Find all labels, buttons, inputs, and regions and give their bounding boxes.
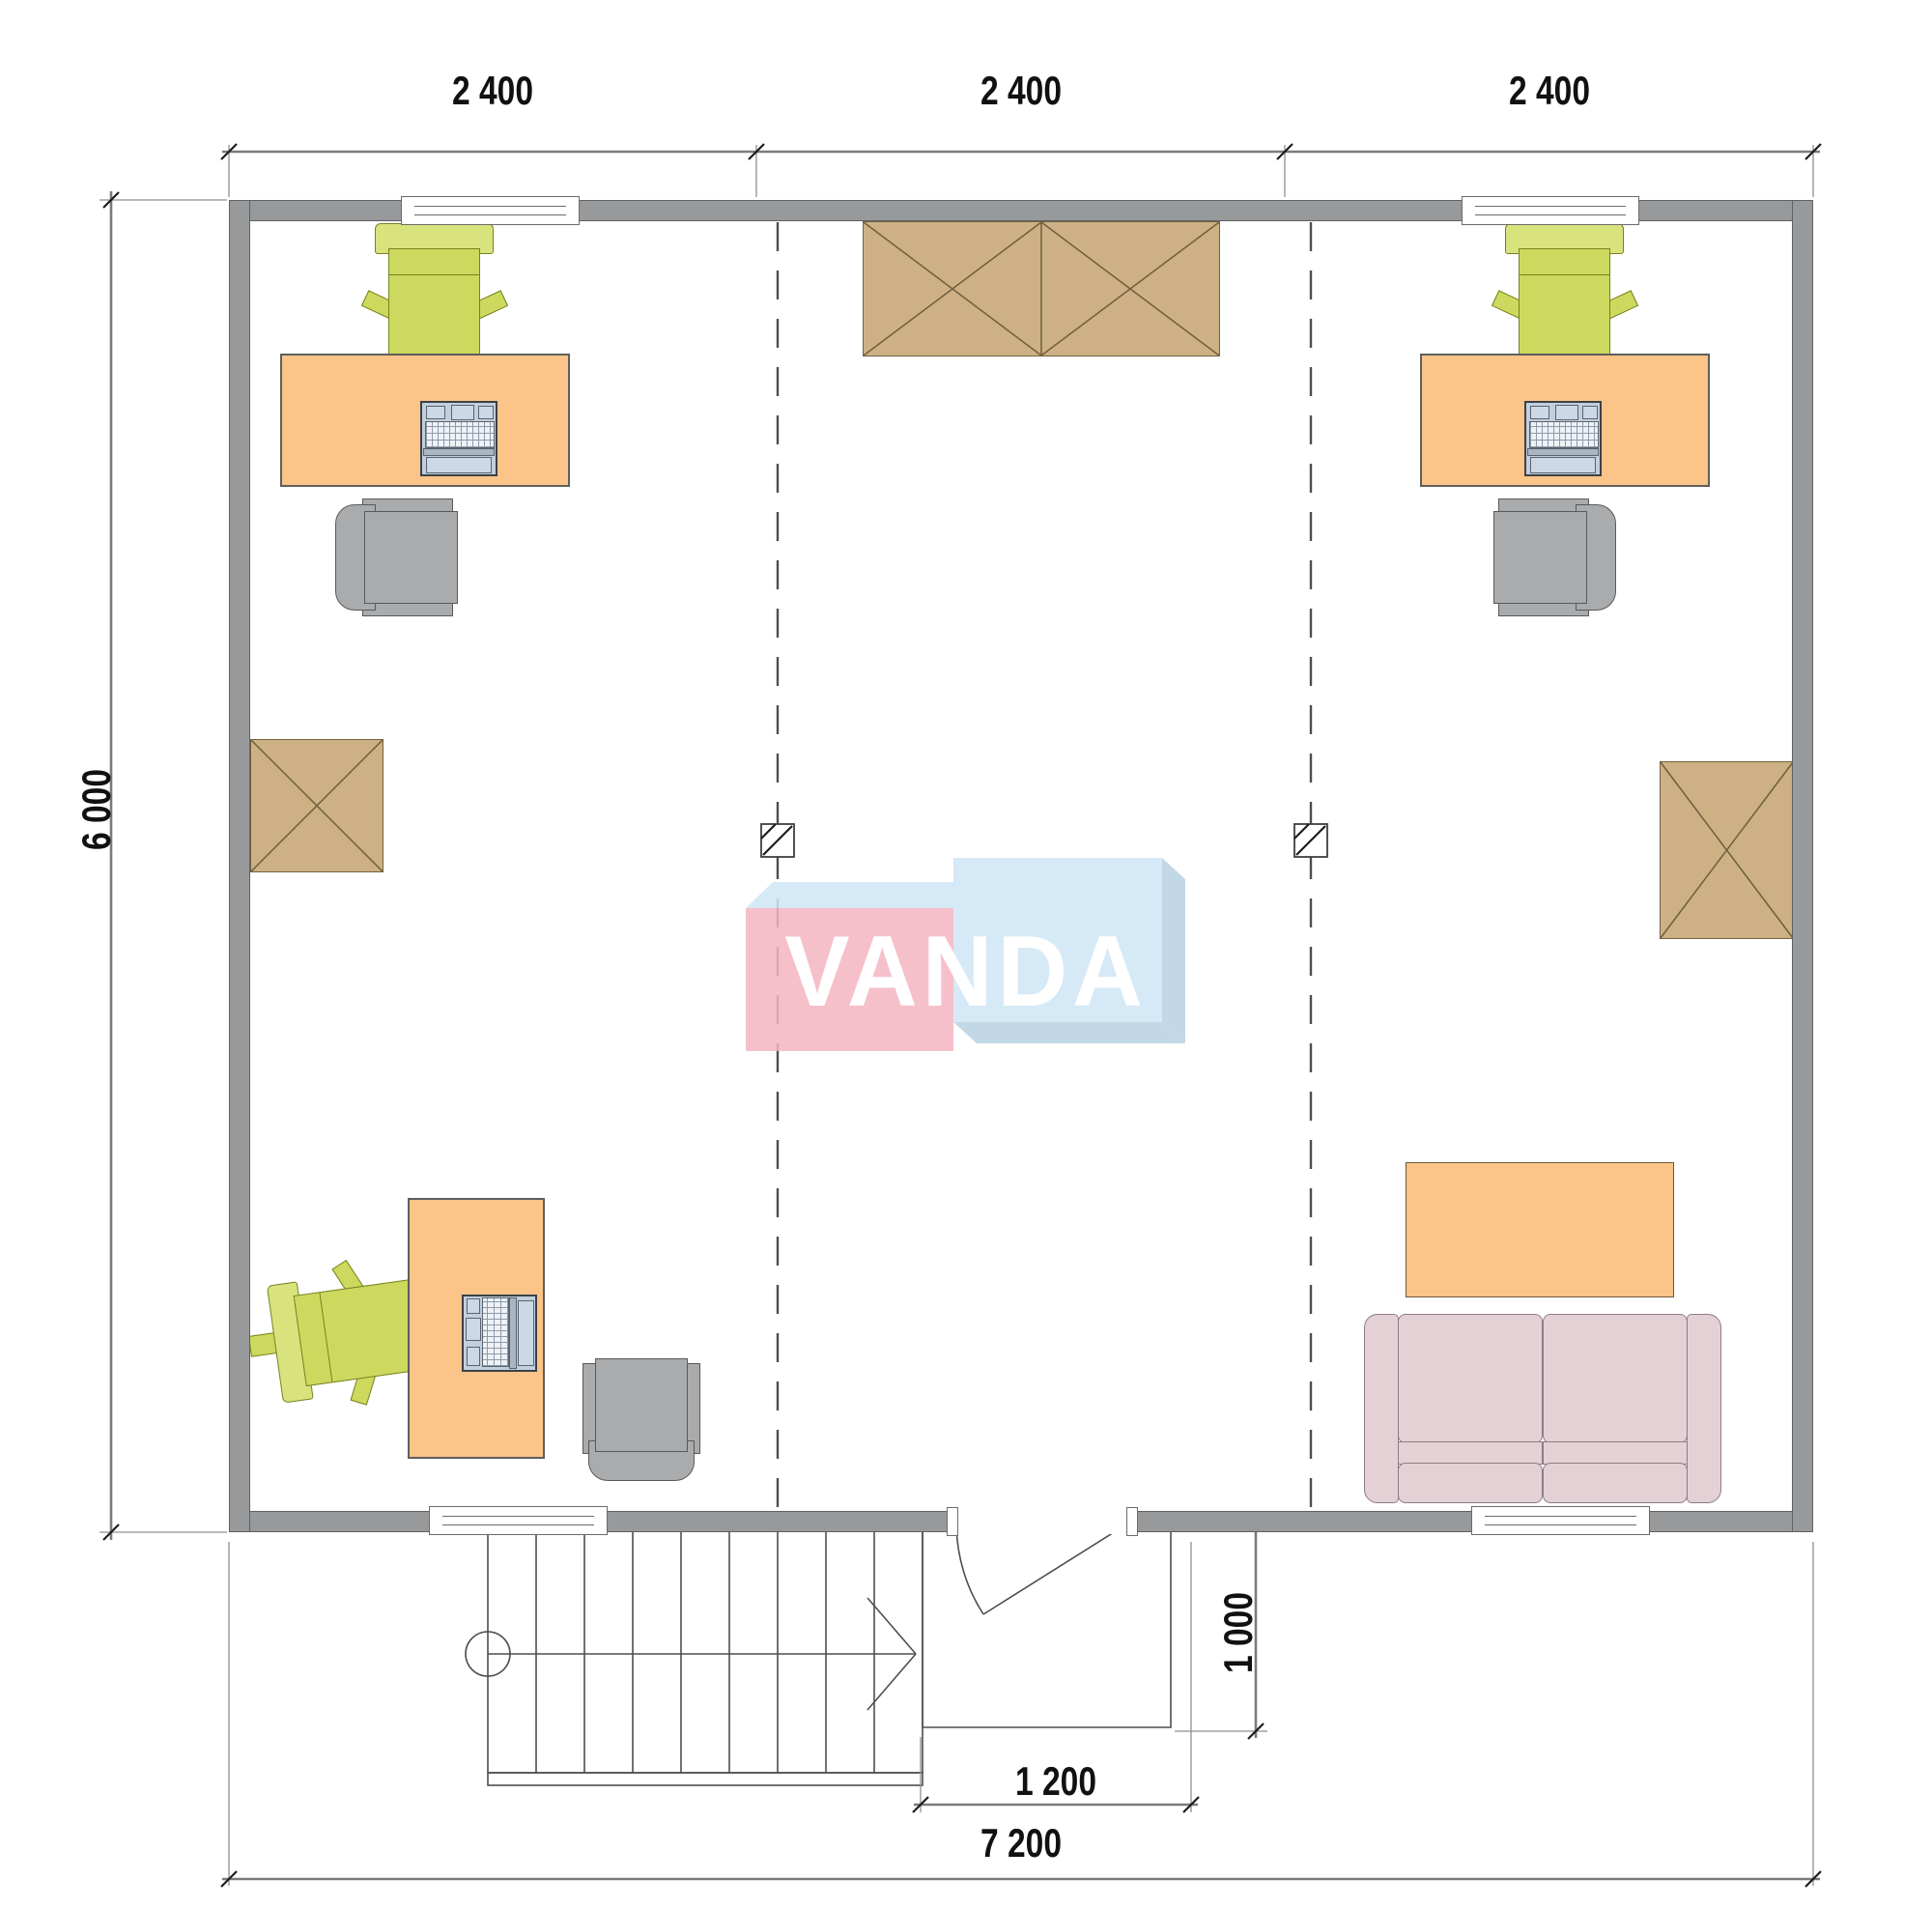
stairs	[466, 1529, 923, 1785]
logo-wordmark: VANDA	[751, 922, 1181, 1022]
sofa-cushion	[1398, 1314, 1543, 1443]
dimension-left	[99, 191, 227, 1540]
dimension-label-bottom: 7 200	[959, 1822, 1083, 1865]
window-bottom-left	[429, 1506, 608, 1535]
window-top-left	[401, 196, 580, 225]
wardrobe-cabinet-top-center	[863, 221, 1220, 356]
sofa-cushion	[1543, 1314, 1688, 1443]
dimension-label-entry-width: 1 200	[994, 1760, 1118, 1803]
sofa-front-cushion	[1398, 1463, 1543, 1503]
window-top-right	[1462, 196, 1639, 225]
wardrobe-cabinet-right	[1660, 761, 1794, 939]
door-jamb-right	[1126, 1507, 1138, 1536]
entry-door	[956, 1524, 1126, 1614]
sofa	[1364, 1314, 1721, 1503]
dimension-label-top-2: 2 400	[959, 70, 1083, 112]
sofa-front-cushion	[1543, 1463, 1688, 1503]
dimension-label-top-1: 2 400	[431, 70, 554, 112]
floor-plan: VANDA 2 400 2 400 2 400 6 000 7 200 1 20…	[0, 0, 1932, 1908]
door-jamb-left	[947, 1507, 958, 1536]
wall-left	[229, 200, 250, 1532]
coffee-table	[1406, 1162, 1674, 1297]
dimension-top	[221, 144, 1821, 197]
wardrobe-cabinet-left	[250, 739, 384, 872]
laptop-icon	[462, 1295, 537, 1372]
sofa-seat-strip	[1543, 1441, 1688, 1465]
sofa-seat-strip	[1398, 1441, 1543, 1465]
door-opening	[958, 1509, 1126, 1534]
wall-right	[1792, 200, 1813, 1532]
window-bottom-right	[1471, 1506, 1650, 1535]
sofa-armrest	[1687, 1314, 1721, 1503]
vanda-logo: VANDA	[744, 829, 1188, 1051]
dimension-label-left: 6 000	[75, 748, 118, 871]
dimension-label-porch-depth: 1 000	[1217, 1571, 1260, 1694]
dimension-label-top-3: 2 400	[1488, 70, 1611, 112]
sofa-armrest	[1364, 1314, 1399, 1503]
laptop-icon	[1524, 401, 1602, 476]
laptop-icon	[420, 401, 497, 476]
